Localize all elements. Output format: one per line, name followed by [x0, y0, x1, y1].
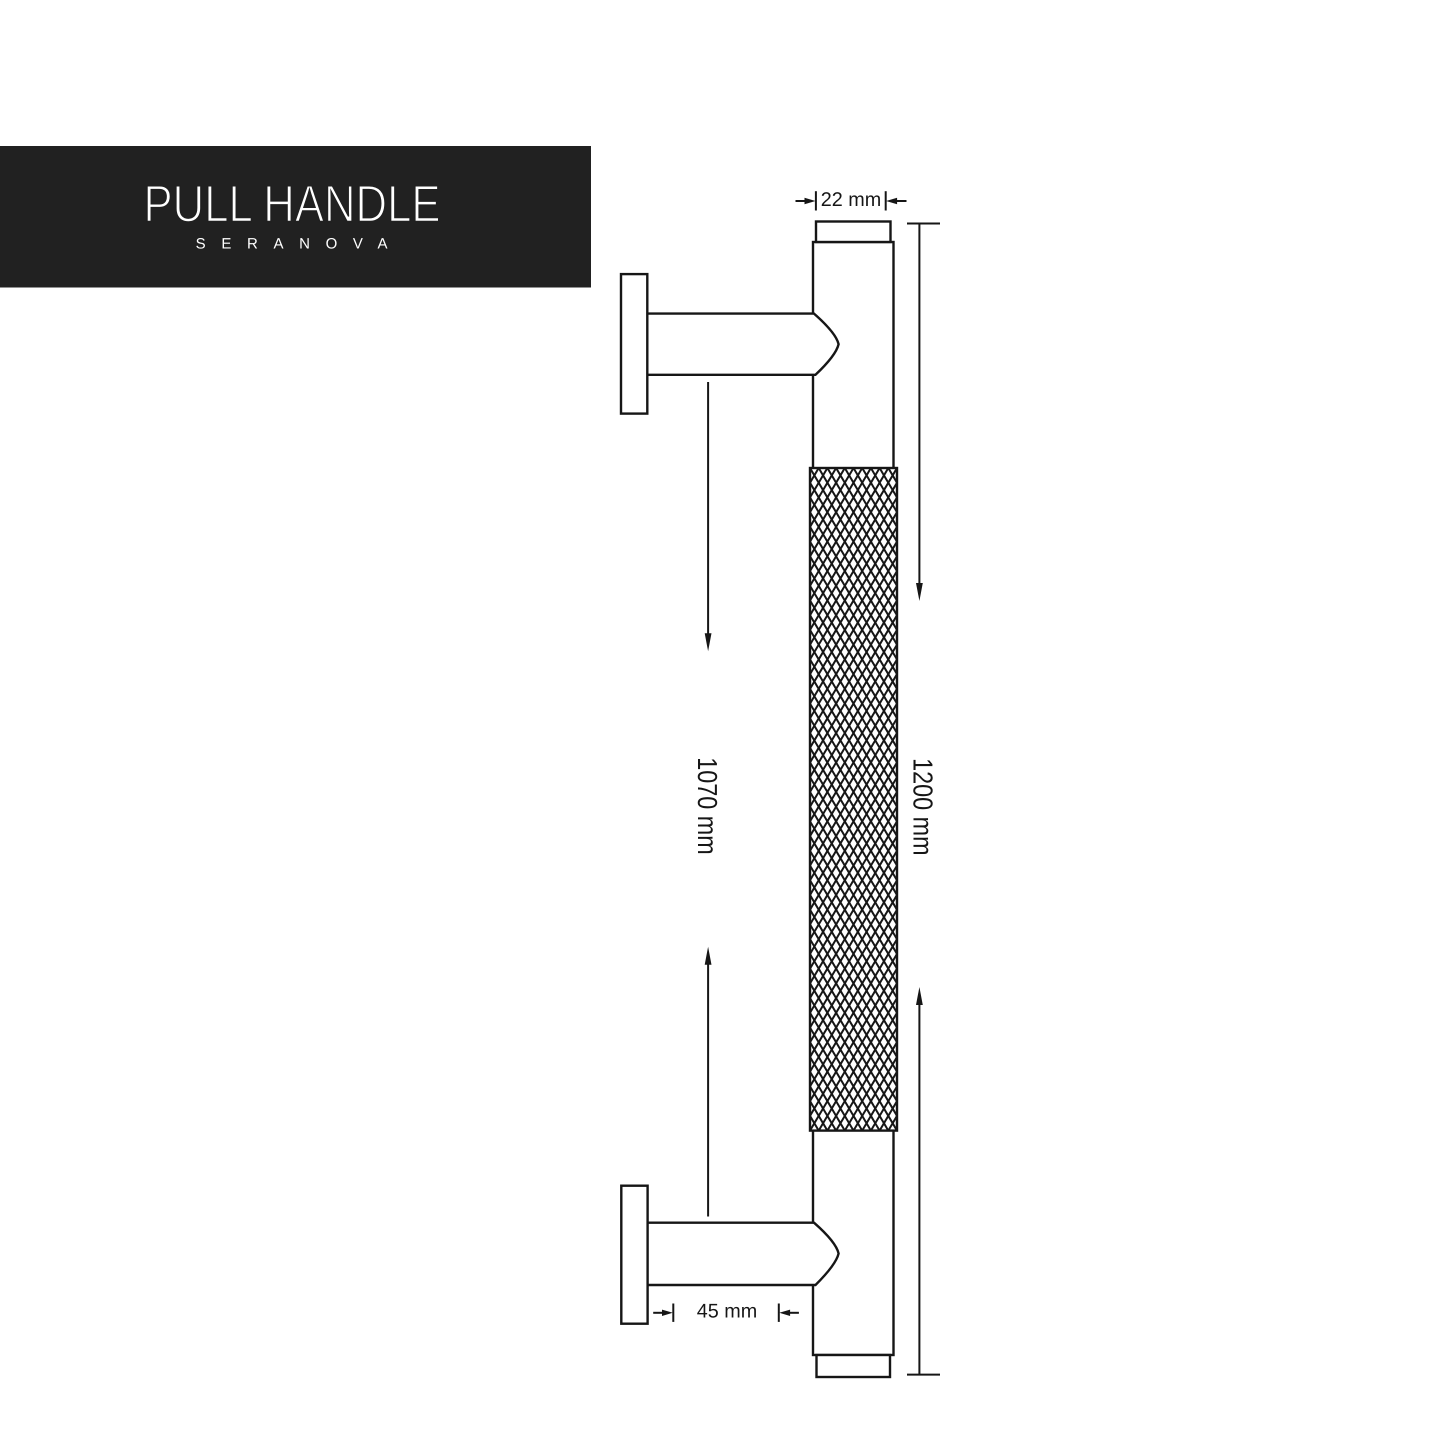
svg-text:1070 mm: 1070 mm: [692, 757, 723, 854]
svg-text:22 mm: 22 mm: [821, 189, 881, 211]
svg-text:45 mm: 45 mm: [697, 1300, 757, 1322]
svg-text:PULL HANDLE: PULL HANDLE: [144, 176, 441, 234]
svg-text:1200 mm: 1200 mm: [908, 758, 939, 855]
svg-text:SERANOVA: SERANOVA: [196, 236, 403, 253]
